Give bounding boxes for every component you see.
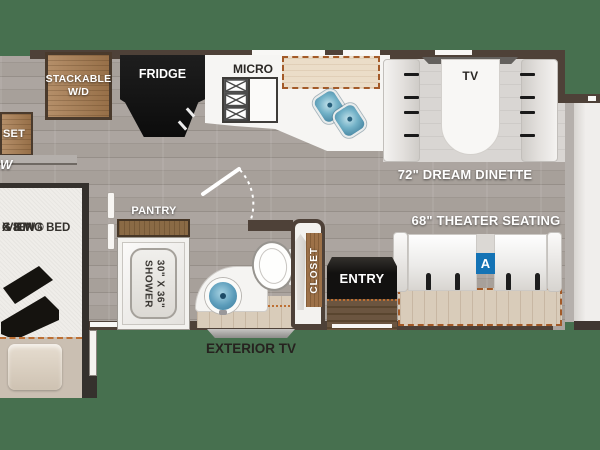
entry-landing: ENTRY <box>327 257 397 299</box>
bedroom-closet: SET <box>0 112 33 156</box>
exterior-tv-label: EXTERIOR TV <box>185 341 317 356</box>
pantry-cabinet <box>117 219 190 237</box>
incline-bed-icon <box>1 260 59 340</box>
shower: SHOWER 30" X 36" <box>117 237 190 330</box>
cup-holder-icon <box>535 273 540 290</box>
cooktop-icon <box>222 77 278 123</box>
window <box>435 50 472 55</box>
bedroom-window <box>89 330 97 376</box>
cup-holder-icon <box>506 273 511 290</box>
shower-label: SHOWER 30" X 36" <box>142 259 165 307</box>
burner-grates-icon <box>224 79 248 121</box>
rv-floor-plan: SET W -VIEW® G KING BED X 80" STACKABLE … <box>0 0 600 450</box>
dinette-table: TV <box>441 59 500 155</box>
label-fragment: W <box>0 157 12 172</box>
bench-tuft <box>520 134 535 137</box>
bottom-wall-right <box>574 321 600 330</box>
exterior-tv-icon <box>207 329 295 338</box>
background-notch <box>0 50 32 56</box>
micro-label: MICRO <box>224 62 282 76</box>
entry-label: ENTRY <box>339 271 384 286</box>
fridge-label: FRIDGE <box>139 67 186 81</box>
closet-label: CLOSET <box>309 247 320 294</box>
pantry-label: PANTRY <box>112 205 196 217</box>
bath-sink-icon <box>205 278 241 314</box>
theater-seat <box>408 234 477 291</box>
cup-holder-icon <box>426 273 431 290</box>
window <box>588 96 596 101</box>
tv-label: TV <box>442 69 499 83</box>
hall-window <box>107 223 115 250</box>
theater-slide-outline <box>398 288 562 326</box>
closet-label-fragment: SET <box>3 128 25 140</box>
countertop-extension <box>282 56 380 89</box>
stackable-label-line1: STACKABLE <box>46 73 112 86</box>
bed-label-line3: X 80" <box>2 222 31 236</box>
bench-tuft <box>404 73 419 76</box>
shower-label-line2: 30" X 36" <box>154 259 166 307</box>
bench-tuft <box>404 134 419 137</box>
closet-door: CLOSET <box>306 233 322 307</box>
window <box>343 50 380 55</box>
option-a-badge: A <box>476 253 495 274</box>
front-cab-area <box>574 103 600 322</box>
theater-label: 68" THEATER SEATING <box>400 213 572 228</box>
bench-tuft <box>404 111 419 114</box>
bed-slide-wall <box>89 376 97 398</box>
cup-holder-icon <box>455 273 460 290</box>
bench-tuft <box>520 111 535 114</box>
entry-door <box>332 324 392 328</box>
bench-tuft <box>520 73 535 76</box>
stackable-label-line2: W/D <box>68 86 89 99</box>
bench-tuft <box>404 96 419 99</box>
theater-console <box>477 234 494 253</box>
window <box>252 50 325 55</box>
pillow <box>8 344 62 390</box>
bath-wall <box>248 220 293 231</box>
stackable-washer-dryer: STACKABLE W/D <box>45 52 112 120</box>
bench-tuft <box>520 96 535 99</box>
faucet-icon <box>219 310 227 315</box>
shower-label-line1: SHOWER <box>142 260 154 308</box>
dinette-label: 72" DREAM DINETTE <box>389 167 541 182</box>
theater-armrest <box>547 232 562 292</box>
